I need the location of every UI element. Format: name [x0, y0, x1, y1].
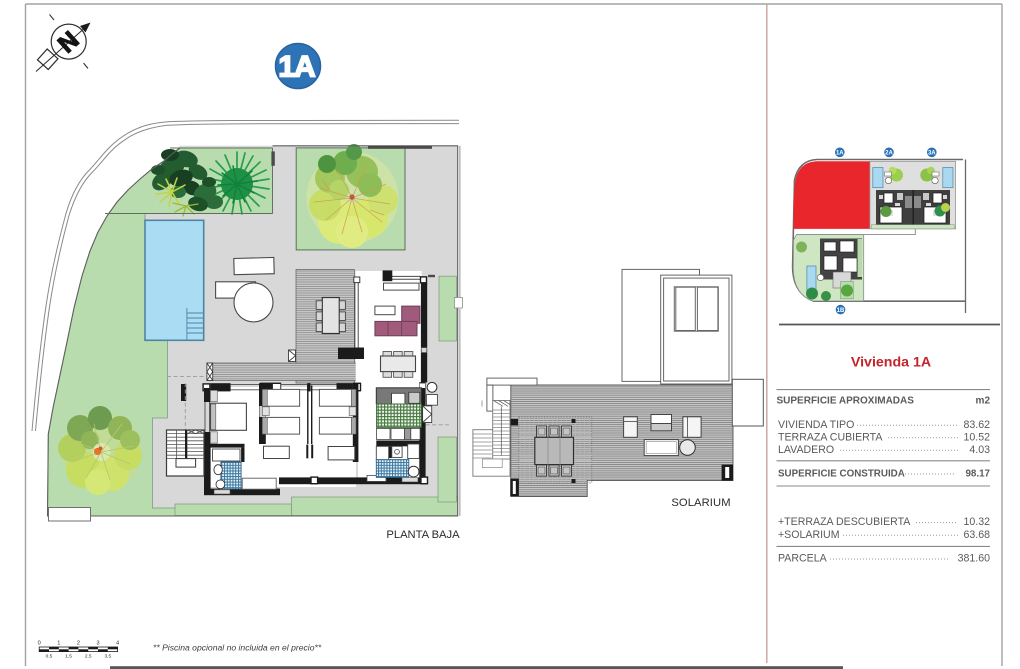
svg-text:2: 2 [77, 641, 80, 647]
svg-text:PLANTA BAJA: PLANTA BAJA [386, 529, 460, 541]
svg-text:SUPERFICIE CONSTRUIDA: SUPERFICIE CONSTRUIDA [778, 469, 905, 480]
svg-text:10.52: 10.52 [963, 431, 990, 443]
svg-text:1A: 1A [278, 51, 315, 84]
svg-text:PARCELA: PARCELA [778, 553, 828, 565]
svg-text:LAVADERO: LAVADERO [778, 444, 834, 456]
svg-text:SOLARIUM: SOLARIUM [671, 497, 730, 509]
svg-text:1.5: 1.5 [65, 654, 72, 660]
svg-text:m2: m2 [976, 396, 991, 407]
svg-text:** Piscina opcional no incluid: ** Piscina opcional no incluida en el pr… [153, 643, 322, 653]
svg-text:4: 4 [116, 641, 119, 647]
svg-text:63.68: 63.68 [963, 529, 990, 541]
svg-text:3: 3 [96, 641, 99, 647]
svg-text:4.03: 4.03 [969, 444, 990, 456]
svg-text:3A: 3A [928, 151, 936, 157]
svg-text:1: 1 [57, 641, 60, 647]
svg-text:TERRAZA CUBIERTA: TERRAZA CUBIERTA [778, 431, 883, 443]
svg-text:0.5: 0.5 [46, 654, 53, 660]
svg-text:1B: 1B [837, 308, 845, 314]
svg-text:381.60: 381.60 [958, 553, 991, 565]
svg-text:SUPERFICIE APROXIMADAS: SUPERFICIE APROXIMADAS [777, 396, 915, 407]
svg-text:98.17: 98.17 [965, 469, 990, 480]
svg-text:VIVIENDA TIPO: VIVIENDA TIPO [778, 419, 854, 431]
svg-text:2A: 2A [885, 151, 893, 157]
svg-text:+SOLARIUM: +SOLARIUM [778, 529, 840, 541]
svg-text:3.5: 3.5 [104, 654, 111, 660]
svg-text:Vivienda 1A: Vivienda 1A [851, 355, 931, 371]
svg-text:2.5: 2.5 [85, 654, 92, 660]
svg-text:0: 0 [38, 641, 41, 647]
svg-text:10.32: 10.32 [963, 516, 990, 528]
svg-text:+TERRAZA DESCUBIERTA: +TERRAZA DESCUBIERTA [778, 516, 911, 528]
svg-text:1A: 1A [836, 151, 844, 157]
svg-text:83.62: 83.62 [963, 419, 990, 431]
